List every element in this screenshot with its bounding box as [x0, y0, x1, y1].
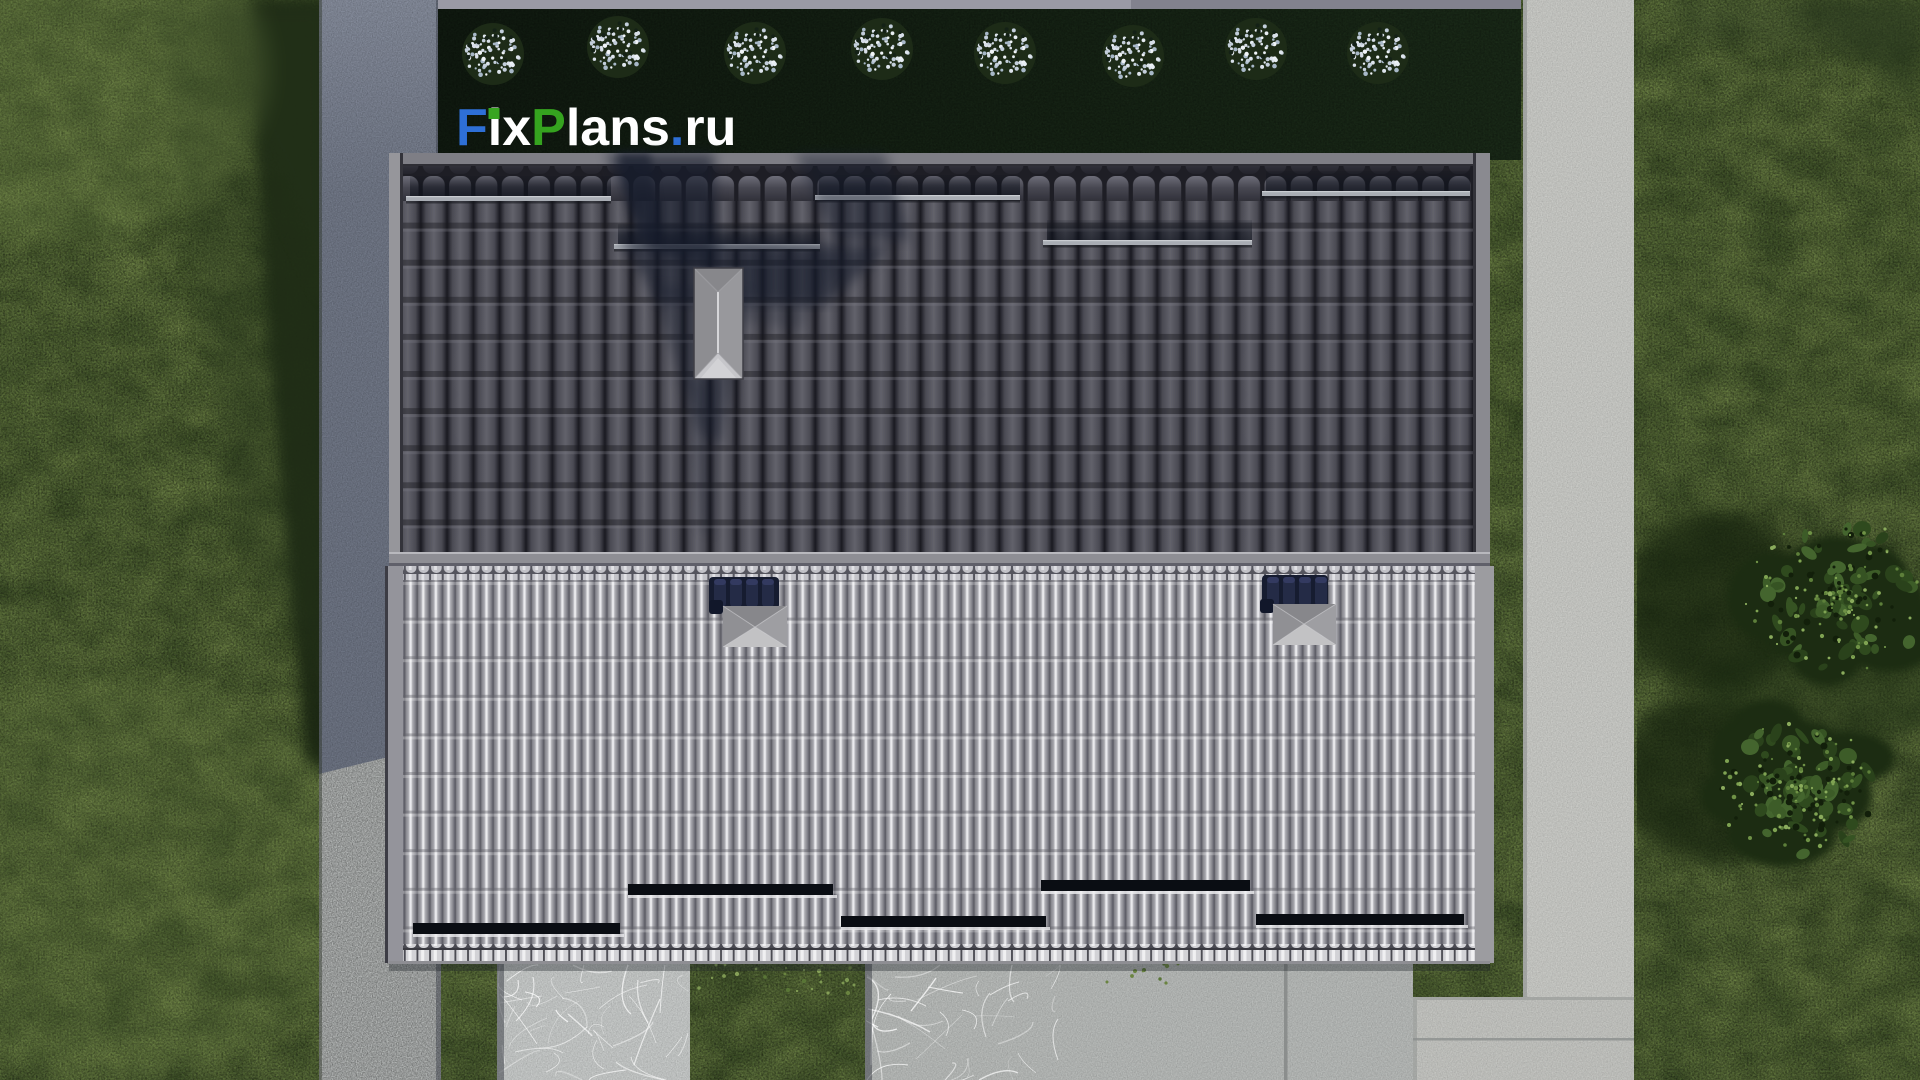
svg-text:FixPlans.ru: FixPlans.ru: [456, 99, 736, 157]
